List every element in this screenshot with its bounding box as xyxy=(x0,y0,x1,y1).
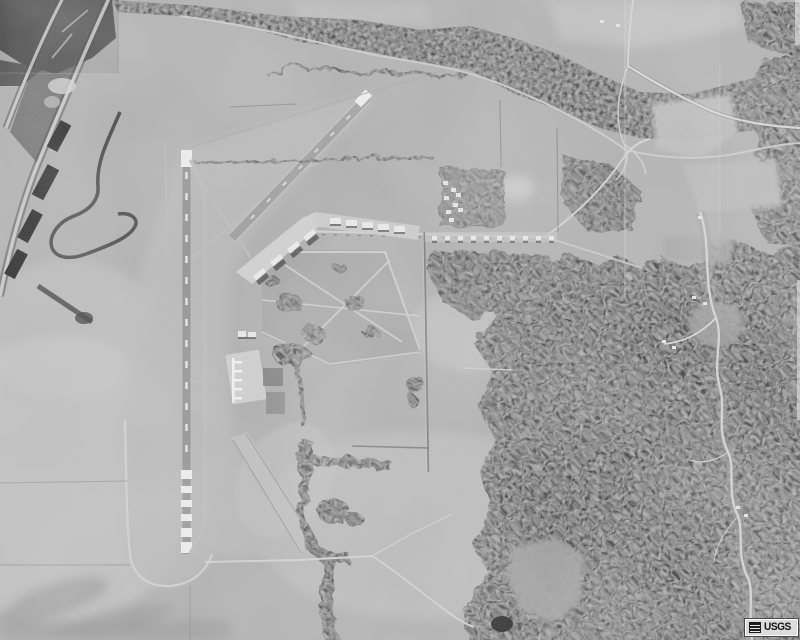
runway-north-south xyxy=(181,150,192,554)
aerial-photo: USGS xyxy=(0,0,800,640)
aerial-photo-svg xyxy=(0,0,800,640)
usgs-watermark-label: USGS xyxy=(764,622,791,633)
pond xyxy=(491,616,513,632)
usgs-logo-icon xyxy=(749,622,761,633)
usgs-watermark: USGS xyxy=(745,619,798,636)
